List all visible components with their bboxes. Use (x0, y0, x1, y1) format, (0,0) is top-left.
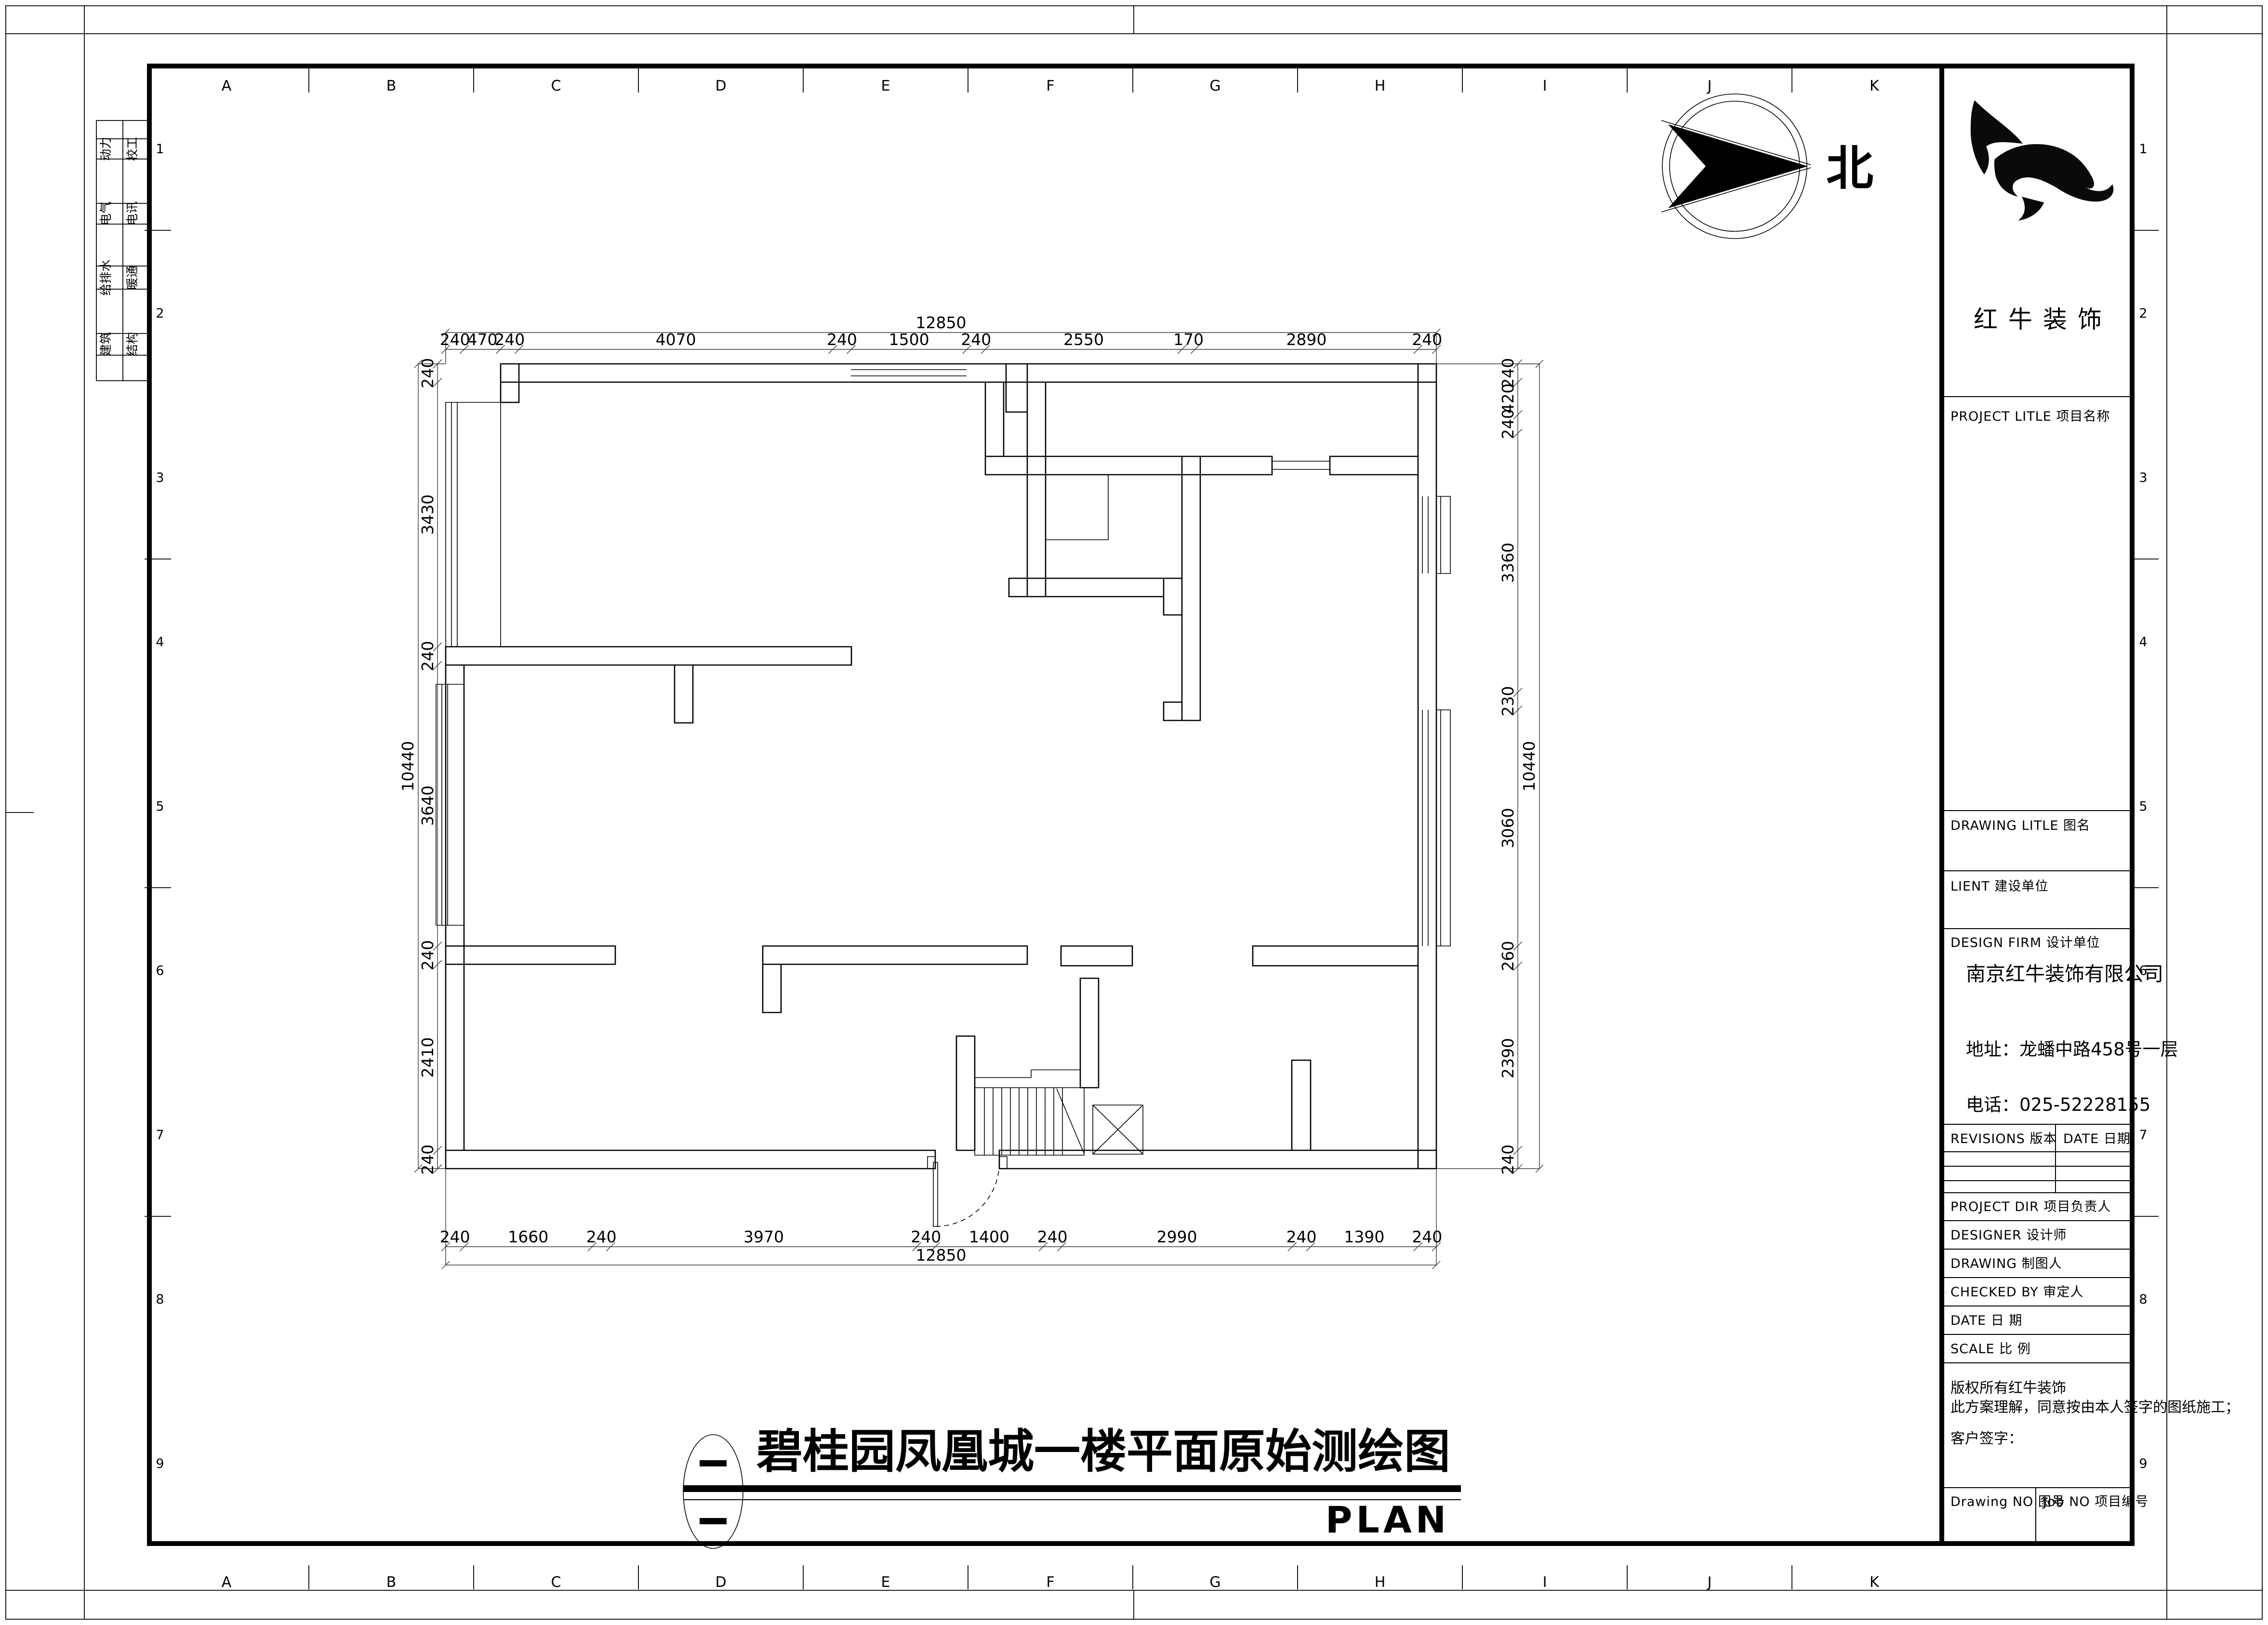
label-8: 9 (156, 1456, 164, 1471)
dim-label: 240 (418, 1145, 437, 1175)
dim-label: 2550 (1063, 330, 1104, 349)
label-0: A (222, 78, 232, 94)
dim-chain-left: 240343024036402402410240 (418, 358, 442, 1175)
plan-walls (446, 364, 1436, 1169)
dim-label: 240 (911, 1227, 941, 1246)
tb-date-head: DATE 日期 (2063, 1132, 2131, 1146)
label-2: 3 (2139, 470, 2147, 485)
dim-label: 240 (961, 330, 991, 349)
dim-label: 240 (1412, 330, 1442, 349)
logo-text: 红牛装饰 (1974, 306, 2112, 333)
dim-total-left: 10440 (398, 741, 417, 792)
tb-revisions-head: REVISIONS 版本 (1950, 1132, 2057, 1146)
door-swing-arc (935, 1162, 999, 1226)
label-5: 6 (156, 963, 164, 978)
dim-label: 240 (1499, 409, 1517, 439)
dim-label: 240 (827, 330, 857, 349)
label-6: G (1209, 1574, 1220, 1591)
dim-label: 3970 (743, 1227, 784, 1246)
dim-label: 230 (1499, 686, 1517, 717)
drawing-title: 碧桂园凤凰城一楼平面原始测绘图 PLAN (683, 1425, 1461, 1548)
label-5: F (1046, 1574, 1054, 1591)
floor-plan-drawing: 动力电气给排水建筑 校工电讯暖通结构 ABCDEFGHIJK ABCDEFGHI… (0, 0, 2268, 1625)
tb-job-no: Job NO 项目编号 (2042, 1494, 2149, 1509)
floor-plan (436, 364, 1450, 1226)
label-1: 2 (156, 306, 164, 321)
discipline-labels-col1: 动力电气给排水建筑 (99, 137, 113, 356)
dim-label: 2410 (418, 1037, 437, 1078)
grid-letters-bottom: ABCDEFGHIJK (222, 1574, 1880, 1591)
tb-phone: 电话：025-52228155 (1966, 1094, 2150, 1115)
label-8: I (1543, 78, 1547, 94)
dim-total-top: 12850 (916, 313, 967, 332)
dim-label: 1660 (508, 1227, 548, 1246)
tb-design-firm: DESIGN FIRM 设计单位 (1950, 935, 2100, 950)
tb-company: 南京红牛装饰有限公司 (1966, 962, 2163, 986)
label-1: 电气 (99, 201, 113, 226)
dim-label: 1400 (969, 1227, 1009, 1246)
label-2: DRAWING 制图人 (1950, 1256, 2062, 1271)
label-7: 8 (2139, 1292, 2147, 1307)
label-7: H (1375, 1574, 1386, 1591)
label-9: J (1707, 1574, 1712, 1591)
drawing-title-text: 碧桂园凤凰城一楼平面原始测绘图 (756, 1425, 1450, 1478)
north-label: 北 (1826, 141, 1873, 196)
title-bubble-dash-top (700, 1460, 727, 1466)
dim-chain-top: 2404702404070240150024025501702890240 (440, 330, 1443, 354)
tb-copyright2: 此方案理解，同意按由本人签字的图纸施工； (1950, 1399, 2240, 1416)
dim-label: 3640 (418, 786, 437, 826)
plan-windows-details (436, 370, 1450, 1226)
dim-label: 240 (1499, 1145, 1517, 1175)
dim-total-bottom: 12850 (916, 1246, 967, 1265)
label-0: 校工 (125, 137, 139, 161)
grid-letters-top: ABCDEFGHIJK (222, 78, 1880, 94)
dim-label: 470 (467, 330, 498, 349)
dim-label: 3360 (1499, 543, 1517, 583)
dim-label: 240 (1412, 1227, 1442, 1246)
discipline-strip: 动力电气给排水建筑 校工电讯暖通结构 (96, 120, 149, 381)
label-0: 1 (156, 142, 164, 157)
label-2: C (551, 1574, 561, 1591)
label-8: I (1543, 1574, 1547, 1591)
company-logo: 红牛装饰 (1971, 100, 2113, 333)
label-2: C (551, 78, 561, 94)
tb-client: LIENT 建设单位 (1950, 879, 2048, 894)
dim-label: 2990 (1157, 1227, 1197, 1246)
dim-label: 170 (1173, 330, 1204, 349)
plan-label: PLAN (1326, 1498, 1450, 1541)
tb-project-title: PROJECT LITLE 项目名称 (1950, 409, 2110, 424)
label-2: 暖通 (125, 266, 139, 290)
dim-label: 2390 (1499, 1038, 1517, 1079)
grid-numbers-right: 123456789 (2139, 142, 2147, 1471)
north-arrow-head (1668, 124, 1808, 208)
label-1: DESIGNER 设计师 (1950, 1228, 2067, 1243)
label-0: 动力 (99, 137, 113, 161)
dim-label: 240 (586, 1227, 617, 1246)
label-0: A (222, 1574, 232, 1591)
dim-label: 240 (418, 940, 437, 971)
label-6: 7 (2139, 1128, 2147, 1143)
grid-numbers-left: 123456789 (156, 142, 164, 1471)
dim-label: 240 (418, 641, 437, 671)
grid-ticks (145, 68, 2159, 1589)
dim-label: 240 (418, 358, 437, 388)
dim-label: 240 (1037, 1227, 1068, 1246)
label-1: B (386, 1574, 397, 1591)
tb-sign: 客户签字： (1950, 1430, 2023, 1447)
label-1: B (386, 78, 397, 94)
title-bubble-dash-bottom (700, 1518, 727, 1524)
label-3: 4 (2139, 635, 2147, 650)
label-9: J (1707, 78, 1712, 94)
label-0: PROJECT DIR 项目负责人 (1950, 1199, 2111, 1214)
label-2: 给排水 (99, 259, 113, 295)
dim-label: 3060 (1499, 808, 1517, 848)
dim-label: 240 (440, 330, 470, 349)
label-5: F (1046, 78, 1054, 94)
label-3: CHECKED BY 审定人 (1950, 1285, 2083, 1300)
label-0: 1 (2139, 142, 2147, 157)
cad-sheet: 动力电气给排水建筑 校工电讯暖通结构 ABCDEFGHIJK ABCDEFGHI… (0, 0, 2268, 1625)
dim-label: 240 (494, 330, 525, 349)
dim-label: 2890 (1286, 330, 1326, 349)
label-8: 9 (2139, 1456, 2147, 1471)
dim-label: 260 (1499, 941, 1517, 971)
label-3: 结构 (125, 332, 139, 356)
tb-drawing-title: DRAWING LITLE 图名 (1950, 818, 2090, 833)
tb-address: 地址：龙蟠中路458号一层 (1966, 1039, 2178, 1060)
label-4: 5 (156, 799, 164, 814)
label-4: DATE 日 期 (1950, 1313, 2022, 1328)
label-6: G (1209, 78, 1220, 94)
dim-label: 4070 (656, 330, 696, 349)
label-1: 2 (2139, 306, 2147, 321)
label-2: 3 (156, 470, 164, 485)
label-3: D (715, 1574, 726, 1591)
label-10: K (1870, 1574, 1880, 1591)
label-4: E (881, 1574, 890, 1591)
north-arrow: 北 (1661, 94, 1873, 239)
label-6: 7 (156, 1128, 164, 1143)
sheet-frame (6, 6, 2262, 1619)
label-10: K (1870, 78, 1880, 94)
label-7: H (1375, 78, 1386, 94)
label-5: SCALE 比 例 (1950, 1342, 2031, 1357)
dim-chain-right: 240420240336023030602602390240 (1499, 358, 1522, 1175)
label-4: E (881, 78, 890, 94)
label-4: 5 (2139, 799, 2147, 814)
label-3: D (715, 78, 726, 94)
discipline-labels-col2: 校工电讯暖通结构 (125, 137, 139, 356)
tb-copyright1: 版权所有红牛装饰 (1950, 1380, 2066, 1397)
dim-label: 3430 (418, 494, 437, 535)
dim-total-right: 10440 (1520, 741, 1539, 792)
dim-label: 240 (440, 1227, 470, 1246)
label-3: 4 (156, 635, 164, 650)
dim-label: 1500 (889, 330, 929, 349)
title-block: 红牛装饰 PROJECT LITLE 项目名称 DRAWING LITLE 图名… (1942, 100, 2240, 1544)
label-7: 8 (156, 1292, 164, 1307)
label-1: 电讯 (125, 201, 139, 226)
dim-label: 240 (1287, 1227, 1317, 1246)
dim-label: 1390 (1344, 1227, 1384, 1246)
label-3: 建筑 (99, 332, 113, 356)
